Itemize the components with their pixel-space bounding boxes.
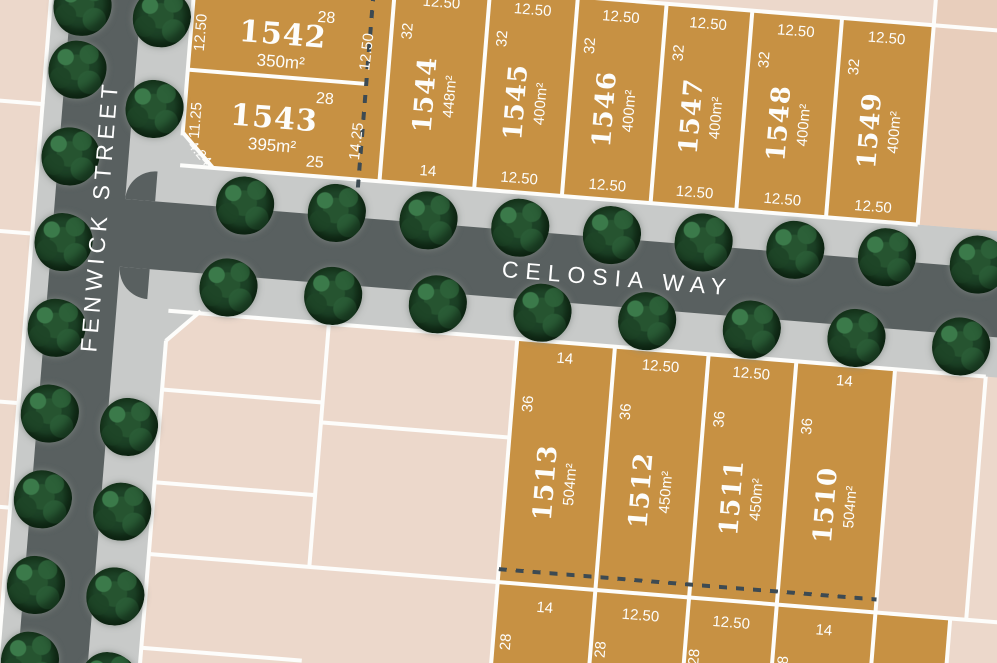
dimension-label: 14 (556, 351, 574, 367)
lot-area: 448m² (441, 75, 460, 119)
dimension-label: 12.50 (689, 15, 728, 33)
lot-1510-label: 1510504m² (809, 466, 861, 546)
dimension-label: 12.50 (641, 357, 680, 375)
lot-1549-label: 1549400m² (854, 91, 906, 171)
lot-label-group: 1512450m² (625, 451, 677, 531)
lot-label-group: 1547400m² (676, 77, 728, 157)
dimension-label: 32 (582, 37, 598, 55)
dimension-label: 12.50 (712, 614, 751, 632)
lot-label-group: 1544448m² (409, 56, 461, 136)
lot-label-group: 1546400m² (588, 70, 640, 150)
lot-label-group: 1549400m² (854, 91, 906, 171)
lot-1545-label: 1545400m² (500, 63, 552, 143)
lot-label-group: 1511450m² (716, 459, 768, 539)
lot-number: 1546 (588, 70, 621, 148)
lot-label-group: 1510504m² (809, 466, 861, 546)
lot-label-group: 1513504m² (530, 444, 582, 524)
dimension-label: 28 (317, 10, 336, 27)
dimension-label: 12.50 (422, 0, 461, 12)
lot-1511-label: 1511450m² (716, 459, 768, 539)
lot-number: 1513 (530, 444, 563, 522)
dimension-label: 12.50 (763, 191, 802, 209)
lot-label-group: 1545400m² (500, 63, 552, 143)
lot-1543-label: 1543395m² (228, 100, 319, 158)
lot-area: 504m² (841, 485, 860, 529)
dimension-label: 12.50 (588, 177, 627, 195)
lot-number: 1542 (238, 16, 328, 54)
lot-area: 400m² (620, 89, 639, 133)
lot-area: 350m² (256, 51, 305, 73)
lot-label-group: 1548400m² (763, 84, 815, 164)
lot-label-group: 1542350m² (236, 16, 327, 74)
dimension-label: 12.50 (777, 22, 816, 40)
lot-1546-label: 1546400m² (588, 70, 640, 150)
lot-number: 1548 (763, 84, 796, 162)
dimension-label: 12.50 (602, 8, 641, 26)
lot-number: 1511 (716, 459, 749, 537)
dimension-label: 12.50 (621, 607, 660, 625)
lot-number: 1510 (809, 466, 842, 544)
lot-1512-label: 1512450m² (625, 451, 677, 531)
lot-1548-label: 1548400m² (763, 84, 815, 164)
lot-1542-label: 1542350m² (236, 16, 327, 74)
lot-number: 1543 (229, 100, 319, 138)
dimension-label: 32 (399, 22, 415, 40)
dimension-label: 12.50 (732, 365, 771, 383)
dimension-label: 28 (592, 641, 608, 659)
dimension-label: 12.50 (867, 30, 906, 48)
lot-1547-label: 1547400m² (676, 77, 728, 157)
background-corner-lot (149, 311, 329, 567)
plan-canvas: FENWICK STREETCELOSIA WAY1542350m²2812.5… (0, 0, 997, 663)
lot-boundary-line (321, 420, 510, 439)
dimension-label: 14 (836, 373, 854, 389)
dimension-label: 36 (799, 417, 815, 435)
masterplan-map: FENWICK STREETCELOSIA WAY1542350m²2812.5… (0, 0, 997, 663)
dimension-label: 12.50 (500, 170, 539, 188)
lot-number: 1512 (625, 451, 658, 529)
lot-boundary-line (0, 227, 34, 236)
lot-number: 1544 (409, 56, 442, 134)
dimension-label: 36 (520, 395, 536, 413)
lot-area: 395m² (247, 134, 296, 156)
lot-number: 1545 (500, 63, 533, 141)
lot-boundary-line (0, 97, 45, 106)
dimension-label: 32 (494, 30, 510, 48)
dimension-label: 28 (686, 648, 702, 663)
lot-label-group: 1543395m² (228, 100, 319, 158)
dimension-label: 36 (618, 403, 634, 421)
dimension-label: 14 (536, 600, 554, 616)
south-next-row-block (869, 612, 951, 663)
lot-1544-label: 1544448m² (409, 56, 461, 136)
dimension-label: 12.50 (357, 32, 376, 71)
lot-number: 1549 (854, 91, 887, 169)
lot-boundary-line (141, 646, 302, 663)
dimension-label: 12.50 (675, 184, 714, 202)
dimension-label: 11.25 (187, 102, 205, 140)
dimension-label: 28 (775, 655, 791, 663)
dimension-label: 14 (419, 163, 437, 179)
dimension-label: 12.50 (854, 198, 893, 216)
dimension-label: 32 (671, 44, 687, 62)
dimension-label: 32 (846, 58, 862, 76)
dimension-label: 12.50 (192, 13, 210, 52)
lot-1513-label: 1513504m² (530, 444, 582, 524)
dimension-label: 32 (756, 51, 772, 69)
dimension-label: 25 (305, 154, 324, 171)
dimension-label: 12.50 (513, 1, 552, 19)
dimension-label: 36 (711, 410, 727, 428)
dimension-label: 14.25 (347, 122, 366, 161)
dimension-label: 28 (315, 91, 334, 108)
dimension-label: 28 (498, 633, 514, 651)
lot-number: 1547 (676, 77, 709, 155)
dimension-label: 14 (815, 622, 833, 638)
